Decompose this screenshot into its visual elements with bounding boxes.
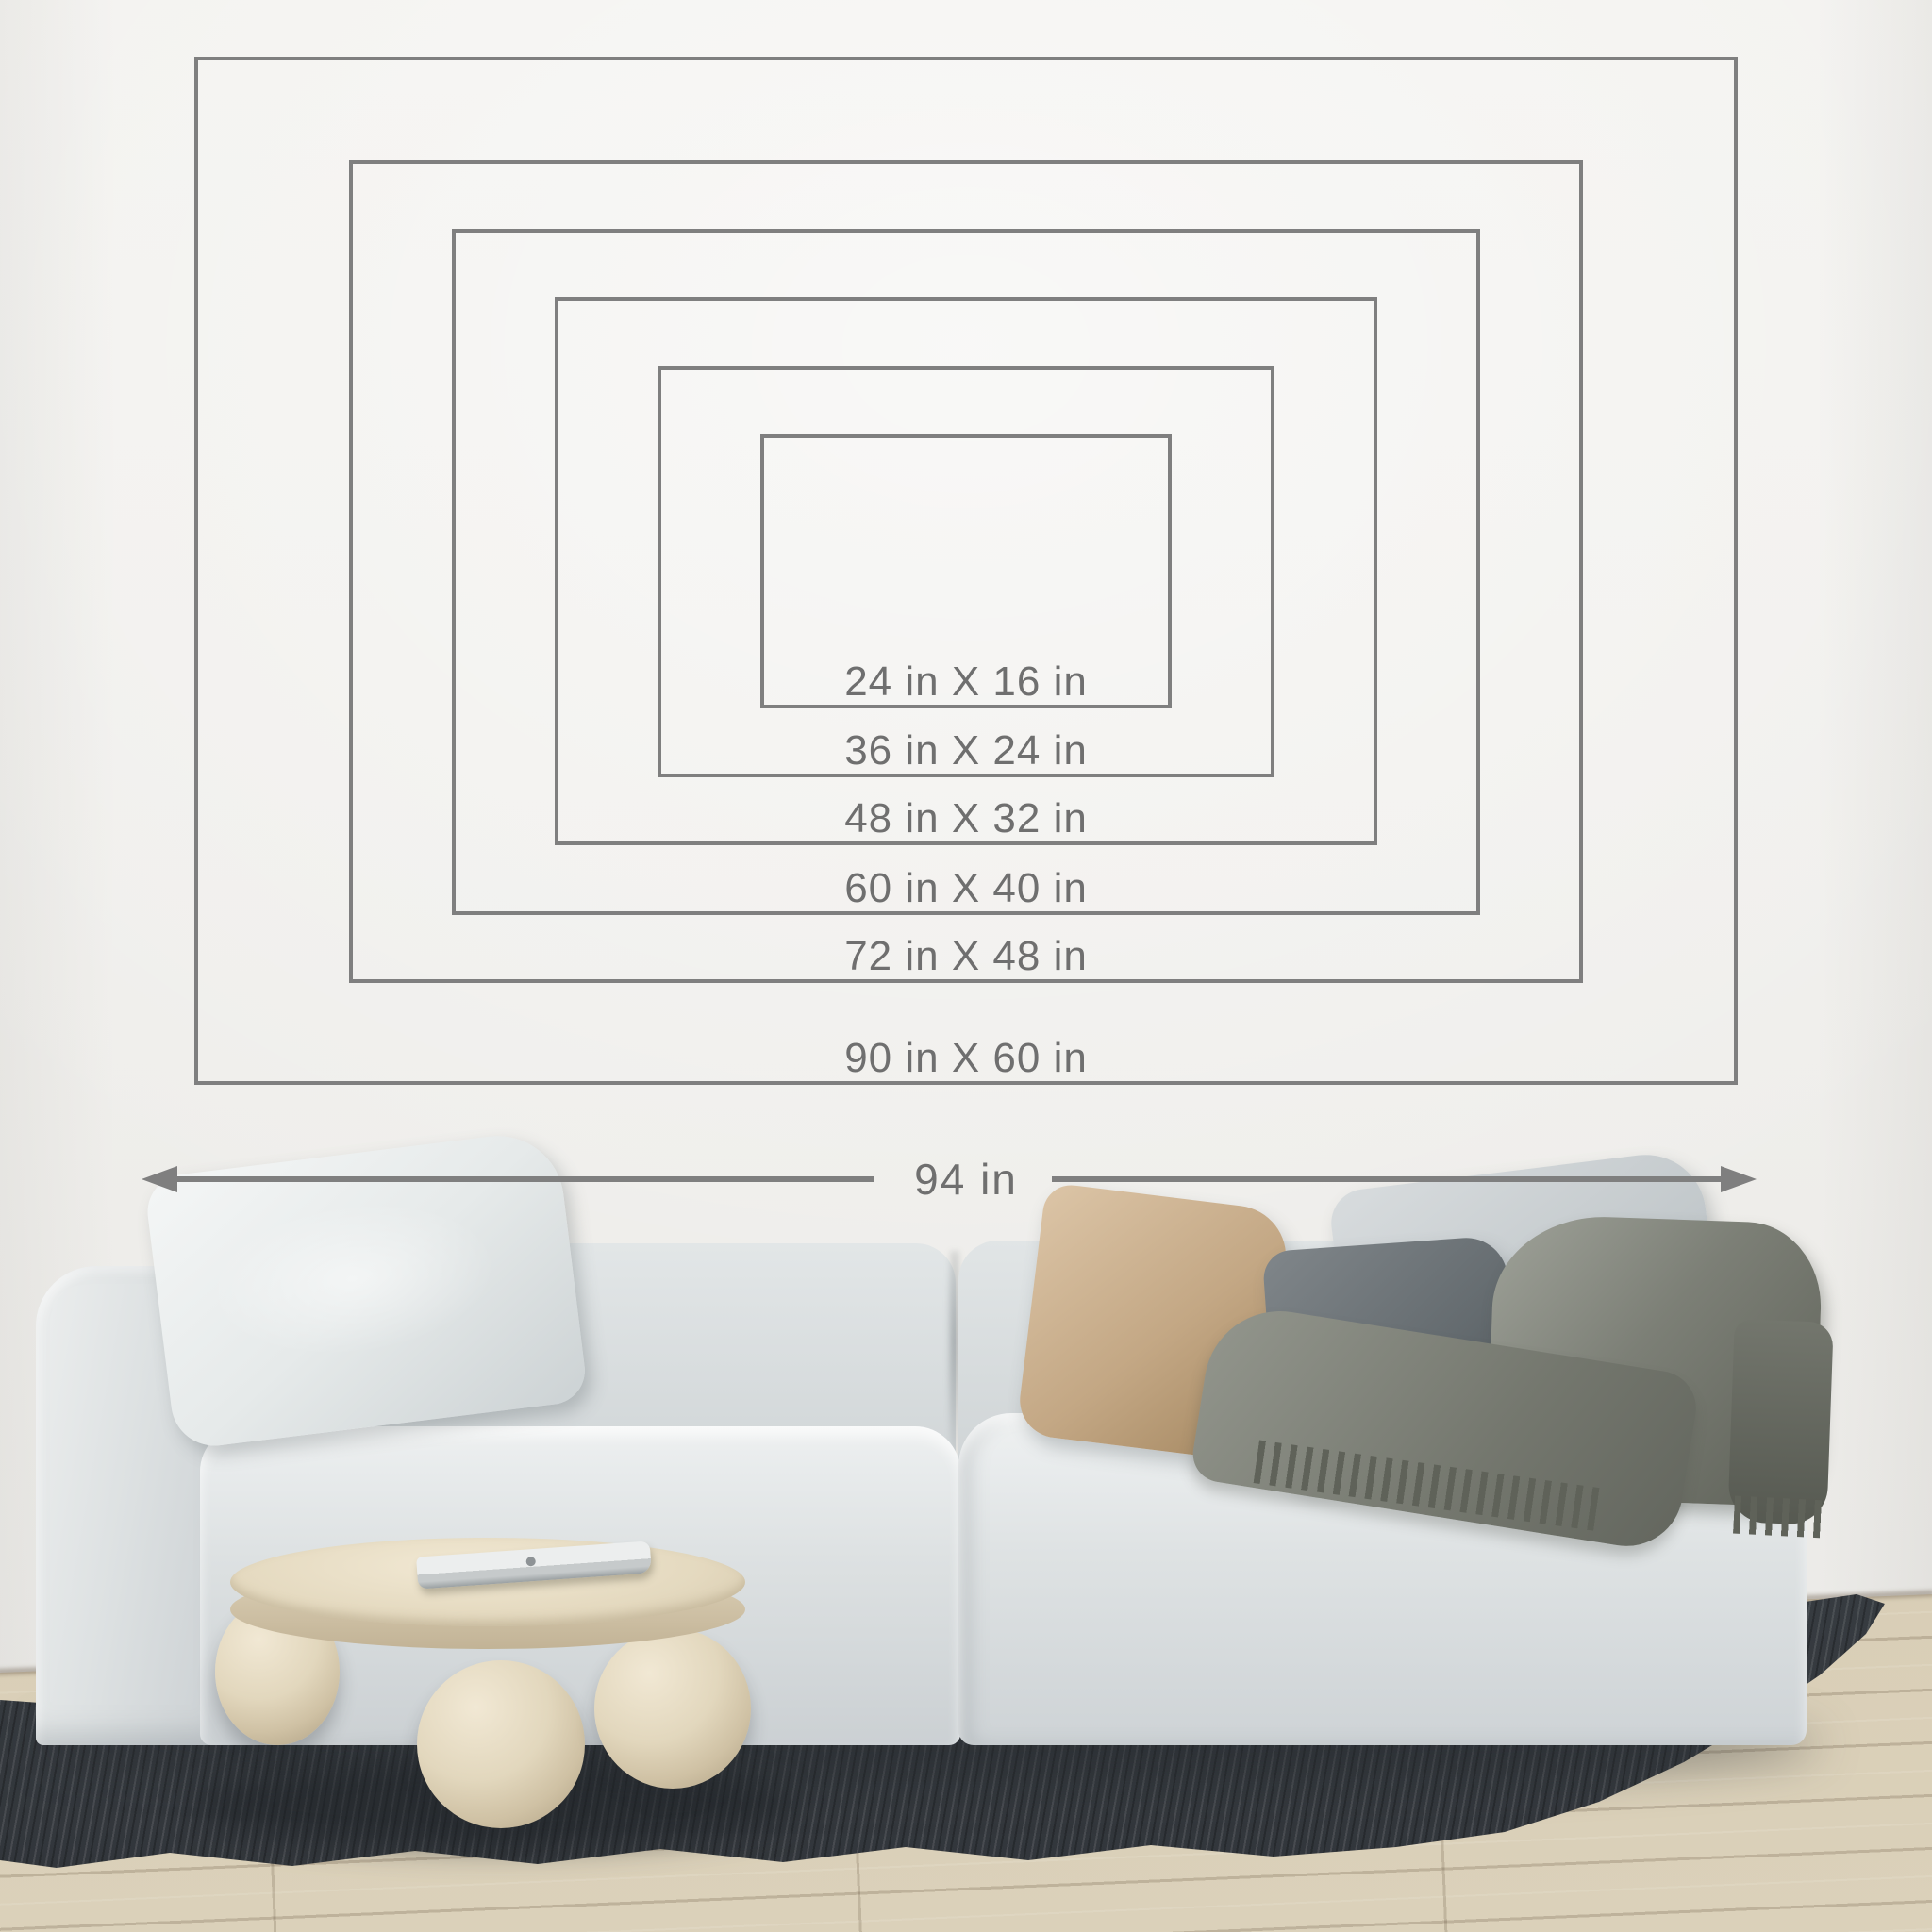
- total-width-label: 94 in: [914, 1158, 1018, 1201]
- arrow-line-left: [170, 1176, 874, 1182]
- arrow-line-right: [1052, 1176, 1728, 1182]
- size-chart-mockup: 24 in X 16 in36 in X 24 in48 in X 32 in6…: [0, 0, 1932, 1932]
- arrow-head-right-icon: [1721, 1166, 1757, 1192]
- arrow-head-left-icon: [142, 1166, 177, 1192]
- width-arrow: 94 in: [0, 0, 1932, 1932]
